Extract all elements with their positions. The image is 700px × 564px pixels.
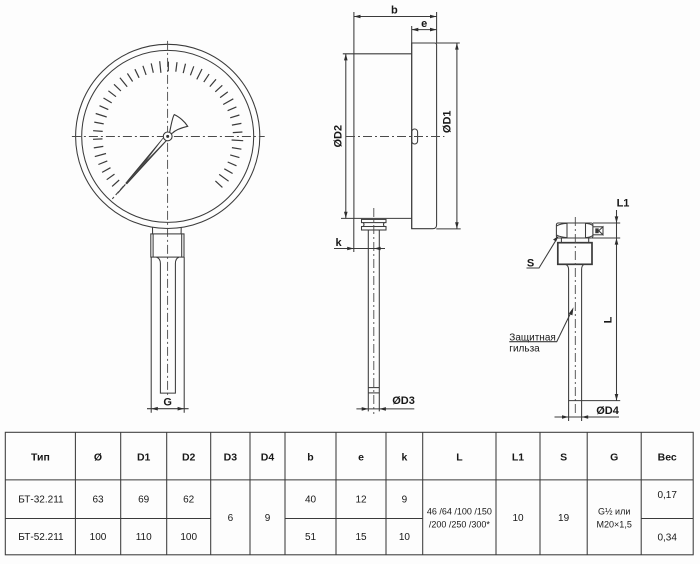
svg-text:S: S [560,452,567,464]
svg-text:15: 15 [355,532,367,543]
svg-text:гильза: гильза [509,344,540,355]
svg-text:ØD3: ØD3 [392,395,415,407]
svg-text:100: 100 [90,532,107,543]
svg-text:G: G [610,452,618,464]
svg-text:6: 6 [228,513,234,524]
svg-text:46 /64 /100 /150: 46 /64 /100 /150 [427,507,492,517]
svg-text:L1: L1 [617,198,630,210]
svg-text:12: 12 [355,495,367,506]
svg-text:k: k [401,452,407,464]
svg-text:М20×1,5: М20×1,5 [597,520,632,530]
svg-text:9: 9 [265,513,271,524]
svg-text:G½ или: G½ или [598,507,630,517]
svg-text:0,34: 0,34 [657,533,677,544]
svg-text:L1: L1 [512,452,524,464]
svg-text:БТ-32.211: БТ-32.211 [18,495,64,506]
svg-text:D3: D3 [224,452,238,464]
svg-text:69: 69 [138,495,150,506]
svg-text:10: 10 [512,513,524,524]
svg-text:G: G [163,396,172,408]
svg-text:19: 19 [558,513,570,524]
svg-text:b: b [307,452,313,464]
svg-text:9: 9 [402,495,408,506]
svg-text:e: e [421,18,427,30]
svg-text:51: 51 [305,532,317,543]
svg-text:Тип: Тип [31,452,50,464]
svg-text:0,17: 0,17 [657,490,677,501]
svg-text:Вес: Вес [658,452,677,464]
svg-text:ØD4: ØD4 [596,405,620,417]
svg-text:L: L [456,452,463,464]
svg-text:100: 100 [180,532,197,543]
svg-text:БТ-52.211: БТ-52.211 [18,532,64,543]
svg-text:D2: D2 [182,452,196,464]
svg-text:62: 62 [183,495,195,506]
svg-text:L: L [603,316,615,323]
svg-text:D1: D1 [137,452,151,464]
svg-text:40: 40 [305,495,317,506]
svg-text:110: 110 [136,532,152,543]
svg-text:63: 63 [92,495,104,506]
svg-text:ØD2: ØD2 [333,125,345,148]
svg-text:D4: D4 [261,452,275,464]
svg-text:Ø: Ø [94,452,102,464]
svg-text:ØD1: ØD1 [442,110,454,133]
svg-text:10: 10 [399,532,411,543]
svg-text:b: b [391,5,398,17]
svg-text:k: k [335,237,342,249]
svg-text:/200 /250 /300*: /200 /250 /300* [429,520,491,530]
svg-text:e: e [358,452,364,464]
